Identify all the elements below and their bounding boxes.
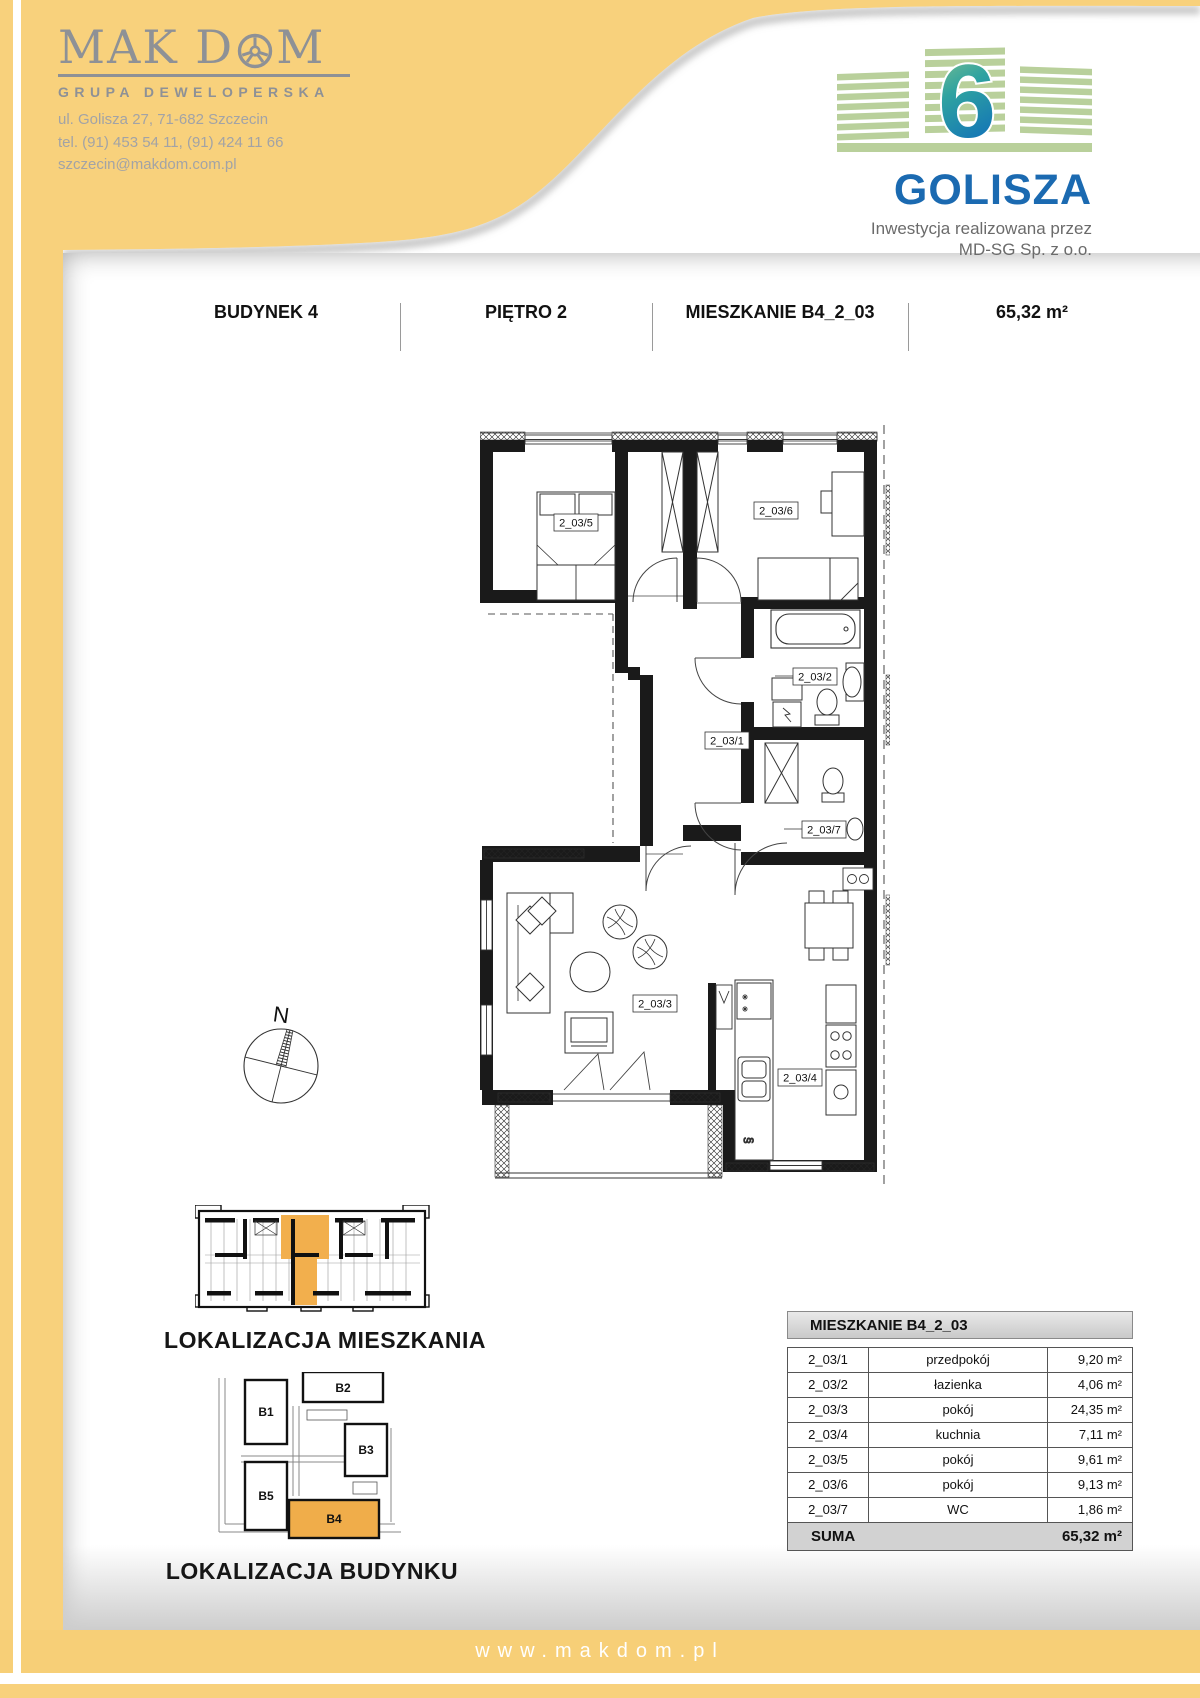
stove-icon (826, 985, 856, 1115)
room-area: 4,06 m² (1048, 1373, 1132, 1397)
svg-text:2_03/4: 2_03/4 (783, 1073, 817, 1085)
golisza-buildings-icon: 6 (837, 40, 1092, 162)
table-row: 2_03/7 WC 1,86 m² (788, 1498, 1132, 1523)
room-area: 24,35 m² (1048, 1398, 1132, 1422)
room-label: 2_03/1 (705, 732, 749, 749)
apartment-locator-map (195, 1205, 430, 1320)
investor-line-2: MD-SG Sp. z o.o. (820, 239, 1092, 260)
room-id: 2_03/3 (788, 1398, 869, 1422)
logo-underline (58, 74, 350, 77)
exterior-top-wall (480, 432, 877, 452)
apartment-locator-caption: LOKALIZACJA MIESZKANIA (140, 1327, 510, 1354)
room-label: 2_03/3 (633, 995, 677, 1012)
footer-url[interactable]: www.makdom.pl (0, 1630, 1200, 1673)
toilet-icon (815, 689, 839, 725)
bathtub-icon (771, 610, 860, 648)
toilet-icon (822, 768, 844, 802)
building-locator-map: B1 B2 B3 B5 B4 (205, 1372, 405, 1550)
room-id: 2_03/6 (788, 1473, 869, 1497)
company-contact: ul. Golisza 27, 71-682 Szczecin tel. (91… (58, 109, 368, 177)
room-area: 9,13 m² (1048, 1473, 1132, 1497)
armchair-icon (603, 905, 667, 969)
room-name: pokój (869, 1473, 1048, 1497)
room-table: MIESZKANIE B4_2_03 2_03/1 przedpokój 9,2… (787, 1311, 1133, 1551)
building-label: B1 (258, 1405, 274, 1419)
room-id: 2_03/7 (788, 1498, 869, 1522)
bed-icon (537, 492, 615, 600)
north-label: N (272, 1001, 291, 1028)
flyer-page: MAK D M GRUPA DEWELOPERSKA ul. Golisza 2… (0, 0, 1200, 1698)
room-area: 1,86 m² (1048, 1498, 1132, 1522)
building-locator-caption: LOKALIZACJA BUDYNKU (137, 1558, 487, 1585)
room-label: 2_03/4 (778, 1069, 822, 1086)
company-phone: tel. (91) 453 54 11, (91) 424 11 66 (58, 132, 368, 155)
room-label: 2_03/5 (554, 514, 598, 531)
golisza-number: 6 (938, 44, 996, 160)
company-tagline: GRUPA DEWELOPERSKA (58, 84, 368, 100)
room-name: łazienka (869, 1373, 1048, 1397)
bed-icon (758, 558, 858, 600)
compass-icon: N (233, 1000, 333, 1110)
svg-text:2_03/1: 2_03/1 (710, 736, 744, 748)
table-row: 2_03/2 łazienka 4,06 m² (788, 1373, 1132, 1398)
tv-bench-icon (565, 1012, 613, 1053)
project-name: GOLISZA (820, 169, 1092, 212)
footer-band: www.makdom.pl (0, 1630, 1200, 1673)
svg-text:2_03/6: 2_03/6 (759, 506, 793, 518)
total-label: SUMA (788, 1523, 1062, 1550)
table-row: 2_03/4 kuchnia 7,11 m² (788, 1423, 1132, 1448)
table-total-row: SUMA 65,32 m² (788, 1523, 1132, 1550)
building-label: B3 (358, 1443, 374, 1457)
project-logo-block: 6 GOLISZA Inwestycja realizowana przez M… (820, 40, 1092, 261)
svg-text:2_03/3: 2_03/3 (638, 999, 672, 1011)
table-row: 2_03/6 pokój 9,13 m² (788, 1473, 1132, 1498)
sink-icon (843, 663, 864, 701)
table-row: 2_03/5 pokój 9,61 m² (788, 1448, 1132, 1473)
fridge-icon (737, 983, 771, 1019)
header-area: 65,32 m² (996, 302, 1068, 323)
balcony-door-icon (553, 1052, 670, 1101)
table-body: 2_03/1 przedpokój 9,20 m² 2_03/2 łazienk… (787, 1347, 1133, 1551)
boiler-icon (843, 868, 873, 890)
kitchen-sink-icon (738, 1057, 770, 1101)
room-name: przedpokój (869, 1348, 1048, 1372)
makdom-logo-text-2: M (276, 24, 325, 70)
header-building: BUDYNEK 4 (214, 302, 318, 323)
neighbour-wall-stubs (886, 485, 890, 965)
table-row: 2_03/1 przedpokój 9,20 m² (788, 1348, 1132, 1373)
room-id: 2_03/1 (788, 1348, 869, 1372)
window-icon (770, 1161, 822, 1170)
room-area: 9,61 m² (1048, 1448, 1132, 1472)
header-divider (400, 303, 401, 351)
balcony-rail (495, 1173, 722, 1178)
shaft-icon (765, 743, 798, 803)
room-name: WC (869, 1498, 1048, 1522)
room-name: pokój (869, 1448, 1048, 1472)
sofa-icon (507, 893, 573, 1013)
drain-symbol: § (742, 1137, 756, 1144)
company-email: szczecin@makdom.com.pl (58, 154, 368, 177)
svg-text:2_03/5: 2_03/5 (559, 518, 593, 530)
desk-icon (821, 472, 864, 536)
svg-text:2_03/7: 2_03/7 (807, 825, 841, 837)
svg-text:2_03/2: 2_03/2 (798, 672, 832, 684)
makdom-logo-text-1: MAK D (58, 24, 234, 70)
table-title: MIESZKANIE B4_2_03 (787, 1311, 1133, 1339)
room-label: 2_03/6 (754, 502, 798, 519)
header-floor: PIĘTRO 2 (485, 302, 567, 323)
company-address: ul. Golisza 27, 71-682 Szczecin (58, 109, 368, 132)
total-area: 65,32 m² (1062, 1523, 1132, 1550)
room-id: 2_03/4 (788, 1423, 869, 1447)
floor-plan: § 2_03/5 2_03 (480, 425, 890, 1190)
dining-table-icon (805, 891, 853, 960)
room-label: 2_03/7 (784, 821, 846, 838)
company-block: MAK D M GRUPA DEWELOPERSKA ul. Golisza 2… (58, 24, 368, 177)
investor-line-1: Inwestycja realizowana przez (820, 218, 1092, 239)
header-divider (908, 303, 909, 351)
coffee-table-icon (570, 952, 610, 992)
room-area: 9,20 m² (1048, 1348, 1132, 1372)
rosette-icon (235, 28, 275, 70)
room-id: 2_03/5 (788, 1448, 869, 1472)
room-area: 7,11 m² (1048, 1423, 1132, 1447)
sink-icon (847, 818, 863, 840)
vent-icon (716, 985, 732, 1029)
building-label: B4 (326, 1512, 342, 1526)
building-label: B5 (258, 1489, 274, 1503)
room-name: pokój (869, 1398, 1048, 1422)
building-label: B2 (335, 1381, 351, 1395)
left-frame-stripe (13, 0, 21, 1684)
room-name: kuchnia (869, 1423, 1048, 1447)
bottom-frame-stripe (0, 1673, 1200, 1684)
room-id: 2_03/2 (788, 1373, 869, 1397)
makdom-logo: MAK D M (58, 24, 368, 70)
kitchen-counter-icon: § (735, 980, 773, 1160)
header-divider (652, 303, 653, 351)
investor-note: Inwestycja realizowana przez MD-SG Sp. z… (820, 218, 1092, 261)
header-apartment: MIESZKANIE B4_2_03 (685, 302, 874, 323)
table-row: 2_03/3 pokój 24,35 m² (788, 1398, 1132, 1423)
